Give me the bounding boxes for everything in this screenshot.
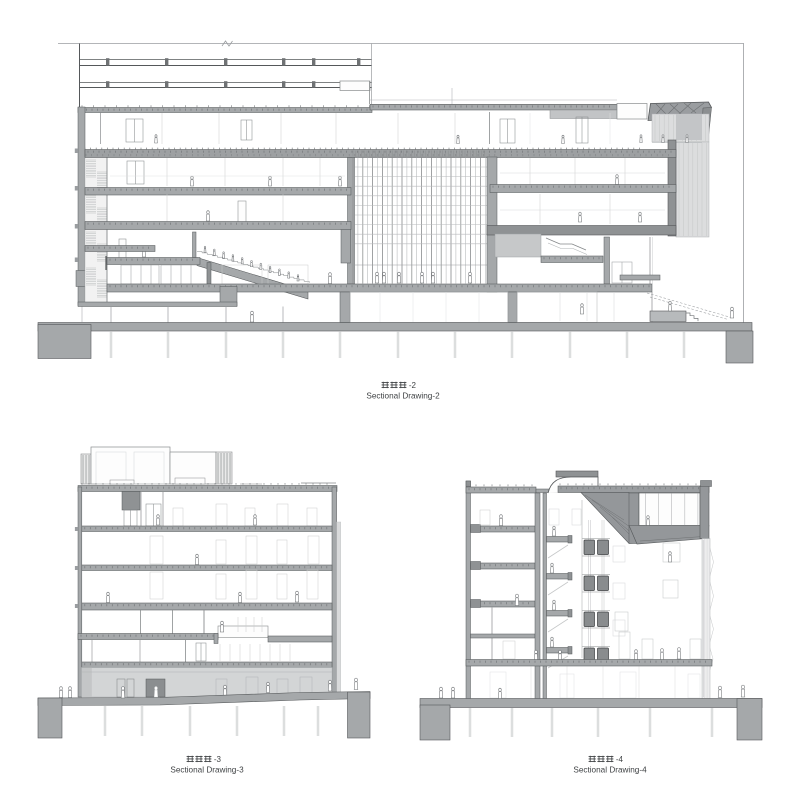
svg-text:Sectional Drawing-2: Sectional Drawing-2 <box>366 392 440 401</box>
svg-text:-2: -2 <box>409 381 417 390</box>
svg-text:-3: -3 <box>214 755 222 764</box>
svg-text:Sectional Drawing-3: Sectional Drawing-3 <box>170 766 244 775</box>
svg-text:-4: -4 <box>616 755 624 764</box>
svg-text:Sectional Drawing-4: Sectional Drawing-4 <box>573 766 647 775</box>
